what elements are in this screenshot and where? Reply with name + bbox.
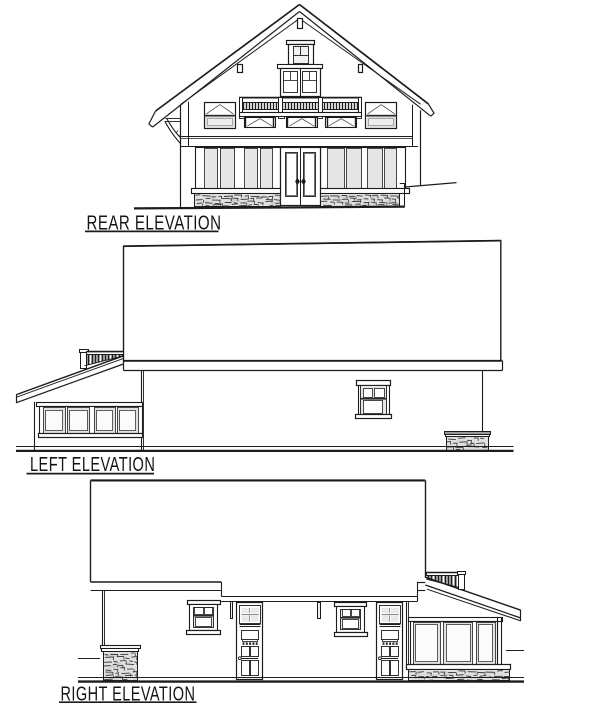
svg-text:LEFT ELEVATION: LEFT ELEVATION — [30, 453, 155, 476]
svg-text:REAR ELEVATION: REAR ELEVATION — [87, 211, 222, 234]
